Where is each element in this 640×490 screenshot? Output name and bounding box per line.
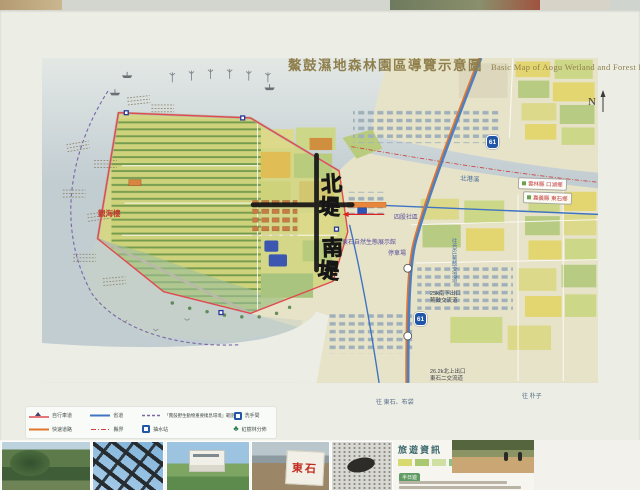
pond-2: [269, 254, 287, 266]
color-square-1: [398, 459, 412, 466]
compass-letter: N: [588, 96, 596, 108]
expressway-symbol: [29, 425, 49, 434]
legend-item-expressway: 快速道路: [29, 425, 91, 434]
handwritten-south-dike-2: 堤: [317, 260, 340, 283]
photo-dongshi-sign: 東石: [252, 442, 329, 490]
map-artwork: [0, 58, 640, 442]
habitat-boundary-symbol: [142, 411, 162, 420]
blurred-text-line: [399, 486, 521, 489]
photo-bird: [332, 442, 392, 490]
legend-row-2: 快速道路 縣界 抽水站 ♣ 紅樹林分佈: [29, 425, 273, 434]
exhibit-hall-marker: [357, 207, 367, 215]
handwritten-south-dike-1: 南: [322, 238, 344, 260]
tree-blob: [10, 450, 50, 476]
map-poster: 鰲鼓濕地森林園區導覽示意圖 Basic Map of Aogu Wetland …: [0, 10, 640, 480]
photo-guanhailou-building: [167, 442, 249, 490]
highway-61-number: 61: [417, 316, 424, 323]
label-guanhailou: 觀海樓: [98, 209, 121, 218]
county-label-yunlin: 雲林縣 口湖鄉: [518, 177, 567, 191]
north-arrow-icon: [598, 90, 608, 114]
county-border-symbol: [91, 425, 111, 434]
poster-blank-corner: [534, 440, 640, 490]
label-river-name: 北港溪: [460, 175, 480, 184]
map-legend: 自行車道 省道 「鰲鼓野生動物重要棲息環境」範圍 洗手間 快速道路: [25, 406, 277, 439]
restroom-icon: [234, 412, 242, 420]
highway-61-number: 61: [489, 139, 496, 146]
county-label-yunlin-text: 雲林縣 口湖鄉: [528, 180, 563, 189]
map-title-en: Basic Map of Aogu Wetland and Forest Par…: [491, 62, 640, 72]
county-label-icon: [522, 181, 526, 185]
legend-item-restroom: 洗手間: [234, 412, 273, 420]
dongshi2-interchange-marker: [404, 332, 412, 340]
dongshi-sign-text: 東石: [292, 459, 319, 476]
direction-south: 往 東石、布袋: [376, 400, 414, 407]
label-parking: 停車場: [388, 251, 406, 258]
highway-61-shield: 61: [415, 313, 426, 325]
handwritten-north-dike-2: 堤: [318, 196, 340, 218]
bike-route-symbol: [29, 411, 49, 420]
handwritten-north-dike-1: 北: [320, 173, 342, 195]
legend-item-mangrove: ♣ 紅樹林分佈: [233, 425, 273, 433]
highway-61-shield-north: 61: [487, 136, 498, 148]
dongshi-sign-board: 東石: [285, 450, 325, 486]
aogu-interchange-marker: [404, 264, 412, 272]
cyclist-figure: [504, 452, 508, 461]
pond-1: [264, 240, 278, 251]
mangrove-palm-icon: ♣: [233, 425, 238, 433]
bird-silhouette: [346, 455, 376, 475]
photo-trees: [2, 442, 90, 490]
legend-item-pump-station: 抽水站: [142, 425, 233, 433]
legend-item-provincial-road: 省道: [90, 411, 141, 420]
label-sigu-village: 四股社區: [394, 215, 418, 222]
map-title: 鰲鼓濕地森林園區導覽示意圖 Basic Map of Aogu Wetland …: [288, 54, 640, 74]
legend-item-bike-route: 自行車道: [29, 411, 90, 420]
label-exhibit-hall: 東石自然生態展示館: [342, 240, 396, 247]
building-windows: [193, 454, 219, 457]
color-square-3: [432, 459, 446, 466]
legend-item-county-border: 縣界: [91, 425, 143, 434]
provincial-road-symbol: [90, 411, 110, 420]
direction-east: 往 朴子: [522, 394, 542, 401]
aogu-interchange-line2: 鰲鼓交流道: [430, 298, 461, 305]
photo-cyclists: [452, 440, 534, 473]
map-title-zh: 鰲鼓濕地森林園區導覽示意圖: [288, 54, 483, 74]
dongshi2-interchange-line2: 東石二交流道: [430, 376, 465, 383]
compass: N: [588, 90, 608, 114]
guanhailou-building-icon: [129, 180, 141, 186]
county-label-chiayi: 嘉義縣 東石鄉: [523, 191, 572, 205]
cyclist-figure: [518, 452, 522, 461]
color-square-2: [415, 459, 429, 466]
dongshi2-interchange-label: 26.2k北上出口 東石二交流道: [430, 369, 465, 383]
pump-station-icon: [142, 425, 150, 433]
aogu-interchange-label: 25k南下出口 鰲鼓交流道: [430, 291, 461, 305]
legend-row-1: 自行車道 省道 「鰲鼓野生動物重要棲息環境」範圍 洗手間: [29, 411, 273, 420]
photo-wooden-blind: [93, 442, 163, 490]
county-label-icon: [527, 195, 531, 199]
county-label-chiayi-text: 嘉義縣 東石鄉: [533, 194, 568, 203]
legend-item-habitat-boundary: 「鰲鼓野生動物重要棲息環境」範圍: [142, 411, 234, 420]
blurred-text-line: [399, 481, 507, 484]
